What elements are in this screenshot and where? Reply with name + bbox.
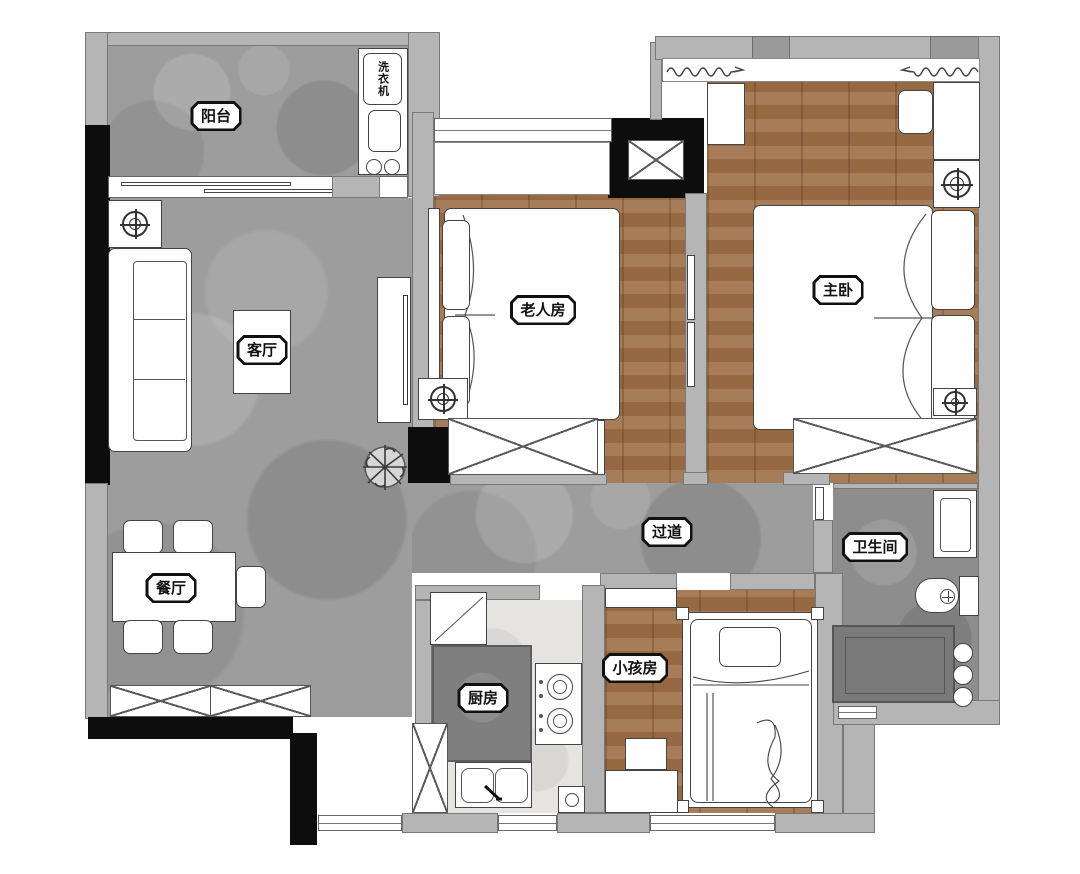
kids-bedpost — [676, 607, 689, 620]
column-bottom-left-h — [88, 717, 293, 739]
wall-bath-door-side — [813, 520, 833, 573]
shower-tray — [845, 637, 945, 694]
bottom-window-left — [318, 815, 402, 831]
dining-chair — [123, 620, 163, 654]
master-wardrobe — [793, 418, 977, 474]
elder-window-sill — [434, 142, 610, 195]
kids-bedpost — [811, 607, 824, 620]
curtain-icon — [872, 62, 980, 78]
bed-fold-lines — [754, 206, 934, 431]
wall-right — [978, 36, 1000, 725]
stove-knob — [539, 680, 543, 684]
master-side-cabinet — [933, 82, 980, 160]
floor-drain — [558, 786, 585, 813]
room-label-dining: 餐厅 — [145, 573, 196, 603]
elder-pillow — [442, 220, 470, 310]
toilet-flush — [940, 589, 955, 604]
kids-bottom-window — [650, 815, 775, 831]
stove-burner — [547, 708, 573, 734]
sideboard-cabinet — [110, 685, 211, 717]
room-label-master: 主卧 — [812, 275, 863, 305]
master-pillow — [931, 210, 975, 310]
wall-top-left — [85, 32, 440, 46]
corridor-floor — [412, 483, 813, 573]
tv-panel — [403, 295, 408, 405]
toilet — [915, 576, 979, 616]
balcony-knob — [366, 159, 382, 175]
kids-bed-frame — [682, 612, 818, 808]
shower-shelf-knob — [953, 665, 973, 685]
master-door-leaf — [687, 255, 695, 320]
shower-area — [832, 625, 955, 703]
faucet-icon — [482, 783, 504, 803]
column-bottom-left-v — [290, 733, 317, 845]
plant-icon — [358, 440, 412, 494]
dining-chair — [173, 520, 213, 554]
stove-knob — [539, 728, 543, 732]
bathroom-door-leaf — [815, 487, 824, 520]
washer-label: 洗衣机 — [375, 61, 391, 97]
wall-left-lower — [85, 483, 108, 719]
wall-left-upper — [85, 32, 108, 127]
kids-bedpost — [811, 800, 824, 813]
shower-shelf-knob — [953, 643, 973, 663]
dining-chair — [173, 620, 213, 654]
wall-bottom-pier-3 — [775, 813, 875, 833]
wall-corridor-top-b — [683, 472, 708, 485]
sofa — [108, 248, 192, 452]
shower-shelf-knob — [953, 687, 973, 707]
ceiling-fixture-icon — [430, 386, 456, 412]
pier-master-top-1 — [752, 36, 790, 60]
ceiling-fixture-icon — [943, 170, 971, 198]
stove-unit — [535, 663, 582, 745]
bathroom-vanity — [933, 490, 977, 558]
room-label-kitchen: 厨房 — [457, 683, 508, 713]
sofa-divider — [133, 319, 185, 320]
bathroom-bottom-window — [838, 706, 877, 719]
sideboard-cabinet — [210, 685, 311, 717]
master-door-leaf — [687, 322, 695, 387]
column-left — [85, 125, 110, 485]
cabinet-top-column — [628, 140, 684, 180]
washing-machine: 洗衣机 — [363, 53, 402, 105]
wall-kitchen-kids — [582, 585, 605, 813]
room-label-kids: 小孩房 — [602, 653, 668, 683]
dining-chair — [236, 566, 266, 608]
balcony-knob — [384, 159, 400, 175]
kids-side-box — [625, 738, 667, 770]
fridge — [430, 592, 487, 645]
room-label-living: 客厅 — [236, 335, 287, 365]
room-label-balcony: 阳台 — [190, 101, 241, 131]
stove-knob — [539, 714, 543, 718]
column-living-corridor — [408, 427, 450, 483]
kids-shelf — [605, 588, 677, 608]
bed-fold-lines — [683, 613, 819, 809]
room-label-elder: 老人房 — [510, 295, 576, 325]
dining-chair — [123, 520, 163, 554]
sliding-door-leaf — [121, 182, 291, 186]
floor-plan: 洗衣机 — [0, 0, 1080, 874]
elder-window — [434, 118, 612, 142]
kitchen-sink-unit — [455, 762, 532, 808]
kids-nightstand — [605, 770, 678, 813]
wall-bathroom-top — [833, 483, 978, 489]
room-label-corridor: 过道 — [641, 517, 692, 547]
curtain-icon — [665, 62, 775, 78]
stove-knob — [539, 694, 543, 698]
wall-corridor-bottom-b — [730, 573, 815, 590]
drain-hole — [565, 793, 579, 807]
toilet-tank — [959, 576, 979, 616]
wall-bottom-pier-1 — [402, 813, 498, 833]
room-label-bathroom: 卫生间 — [842, 532, 908, 562]
master-bed — [753, 205, 933, 430]
kitchen-bottom-window — [498, 815, 557, 831]
elder-wardrobe — [448, 418, 598, 475]
washer-unit: 洗衣机 — [358, 48, 408, 175]
wall-bottom-pier-2 — [557, 813, 650, 833]
stove-burner — [547, 674, 573, 700]
kitchen-tall-cabinet — [412, 723, 448, 813]
sofa-seat — [133, 261, 187, 441]
master-nightstand — [707, 83, 745, 145]
pier-balcony-door — [332, 176, 380, 198]
master-cushion — [898, 90, 933, 134]
bathroom-sink — [940, 498, 971, 552]
balcony-sink — [368, 110, 401, 152]
ceiling-fixture-icon — [122, 211, 148, 237]
ceiling-fixture-icon — [944, 391, 966, 413]
sofa-divider — [133, 379, 185, 380]
